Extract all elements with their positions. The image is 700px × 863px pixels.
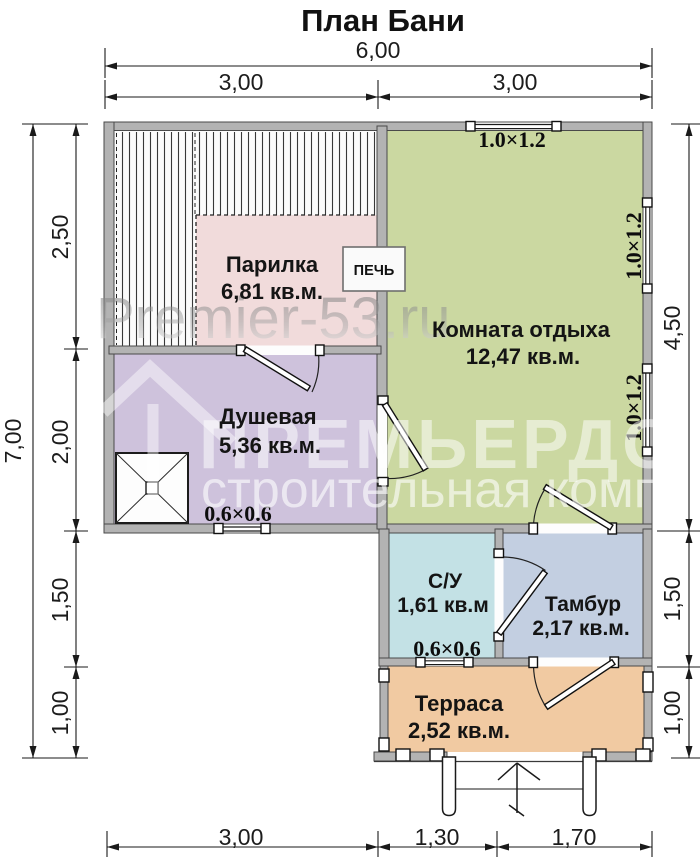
svg-text:2,52 кв.м.: 2,52 кв.м.	[408, 718, 510, 743]
svg-text:1,50: 1,50	[47, 578, 73, 623]
svg-text:Комната отдыха: Комната отдыха	[432, 317, 611, 342]
svg-text:3,00: 3,00	[219, 824, 264, 850]
svg-text:6,81 кв.м.: 6,81 кв.м.	[221, 279, 323, 304]
svg-text:План Бани: План Бани	[301, 3, 465, 38]
svg-text:2,50: 2,50	[47, 215, 73, 260]
svg-text:7,00: 7,00	[0, 419, 26, 464]
svg-text:1.0×1.2: 1.0×1.2	[621, 212, 646, 280]
svg-text:0.6×0.6: 0.6×0.6	[413, 636, 481, 661]
svg-text:6,00: 6,00	[356, 37, 401, 63]
svg-text:1,00: 1,00	[47, 691, 73, 736]
svg-text:1,50: 1,50	[659, 577, 685, 622]
svg-text:1,30: 1,30	[415, 824, 460, 850]
svg-text:1,61 кв.м: 1,61 кв.м	[397, 594, 489, 617]
svg-text:С/У: С/У	[428, 570, 463, 593]
svg-text:2,17 кв.м.: 2,17 кв.м.	[532, 617, 629, 640]
svg-text:1.0×1.2: 1.0×1.2	[478, 127, 546, 152]
svg-text:5,36 кв.м.: 5,36 кв.м.	[219, 433, 321, 458]
svg-text:Душевая: Душевая	[219, 404, 316, 429]
svg-text:2,00: 2,00	[47, 420, 73, 465]
svg-text:1,00: 1,00	[659, 691, 685, 736]
svg-text:Парилка: Парилка	[226, 252, 319, 277]
svg-text:4,50: 4,50	[659, 306, 685, 351]
svg-text:1,70: 1,70	[552, 824, 597, 850]
svg-text:Терраса: Терраса	[415, 691, 504, 716]
svg-text:строительная компания: строительная компания	[201, 461, 700, 519]
svg-text:ПЕЧЬ: ПЕЧЬ	[354, 263, 395, 279]
svg-text:12,47 кв.м.: 12,47 кв.м.	[466, 344, 580, 369]
svg-text:3,00: 3,00	[219, 69, 264, 95]
svg-text:3,00: 3,00	[493, 69, 538, 95]
svg-text:Тамбур: Тамбур	[545, 593, 621, 616]
